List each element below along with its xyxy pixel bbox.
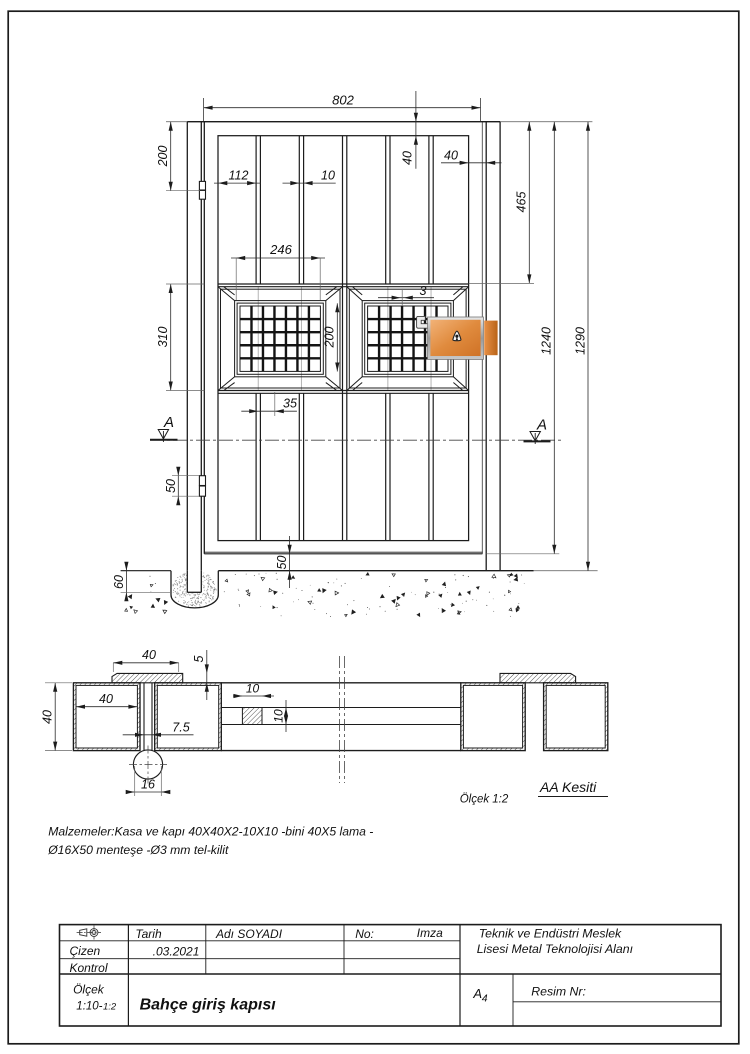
svg-text:5: 5 — [192, 655, 206, 662]
svg-text:Adı SOYADI: Adı SOYADI — [215, 927, 283, 941]
svg-text:200: 200 — [156, 146, 170, 168]
svg-text:Teknik ve Endüstri Meslek: Teknik ve Endüstri Meslek — [479, 927, 622, 941]
svg-text:Ölçek 1:2: Ölçek 1:2 — [460, 794, 509, 806]
svg-text:Tarih: Tarih — [135, 927, 162, 941]
svg-text:A: A — [472, 986, 482, 1001]
svg-text:16: 16 — [141, 778, 155, 792]
svg-text:1240: 1240 — [540, 327, 554, 355]
svg-text:50: 50 — [275, 556, 289, 570]
svg-text:Ø16X50 menteşe -Ø3 mm tel-kili: Ø16X50 menteşe -Ø3 mm tel-kilit — [47, 843, 229, 857]
svg-text:112: 112 — [229, 169, 249, 183]
svg-text:Bahçe giriş kapısı: Bahçe giriş kapısı — [140, 997, 277, 1014]
svg-text:Çizen: Çizen — [70, 944, 101, 958]
svg-text:Imza: Imza — [417, 926, 443, 940]
svg-text:246: 246 — [269, 242, 292, 257]
svg-text:10: 10 — [272, 709, 286, 723]
svg-text:40: 40 — [41, 710, 55, 724]
svg-text:1290: 1290 — [573, 327, 587, 355]
svg-text:465: 465 — [515, 192, 529, 213]
svg-text:Ölçek: Ölçek — [73, 982, 105, 996]
svg-text:No:: No: — [355, 927, 374, 941]
svg-text:Kontrol: Kontrol — [70, 961, 108, 975]
svg-text:310: 310 — [156, 327, 170, 348]
svg-text:3: 3 — [420, 284, 427, 298]
svg-text:1:10-: 1:10- — [76, 1001, 102, 1013]
svg-text:Resim Nr:: Resim Nr: — [531, 985, 586, 999]
svg-text:40: 40 — [401, 151, 415, 165]
svg-text:40: 40 — [99, 692, 113, 706]
svg-text:7.5: 7.5 — [172, 721, 189, 735]
svg-text:Malzemeler:Kasa ve kapı 40X40X: Malzemeler:Kasa ve kapı 40X40X2-10X10 -b… — [48, 825, 373, 839]
svg-text:10: 10 — [246, 682, 260, 696]
svg-text:10: 10 — [321, 169, 335, 183]
svg-text:AA Kesiti: AA Kesiti — [539, 779, 597, 795]
svg-text:200: 200 — [323, 327, 337, 349]
svg-text:Lisesi Metal Teknolojisi Alanı: Lisesi Metal Teknolojisi Alanı — [477, 942, 633, 956]
svg-text:35: 35 — [283, 397, 297, 411]
svg-text:A: A — [163, 414, 174, 431]
svg-text:50: 50 — [164, 479, 178, 493]
svg-text:40: 40 — [142, 648, 156, 662]
svg-text:1:2: 1:2 — [103, 1002, 117, 1013]
svg-text:802: 802 — [332, 93, 354, 108]
svg-text:40: 40 — [444, 149, 458, 163]
svg-text:.03.2021: .03.2021 — [153, 945, 200, 959]
svg-text:4: 4 — [482, 993, 488, 1005]
svg-text:A: A — [536, 417, 547, 434]
svg-text:60: 60 — [112, 575, 126, 589]
